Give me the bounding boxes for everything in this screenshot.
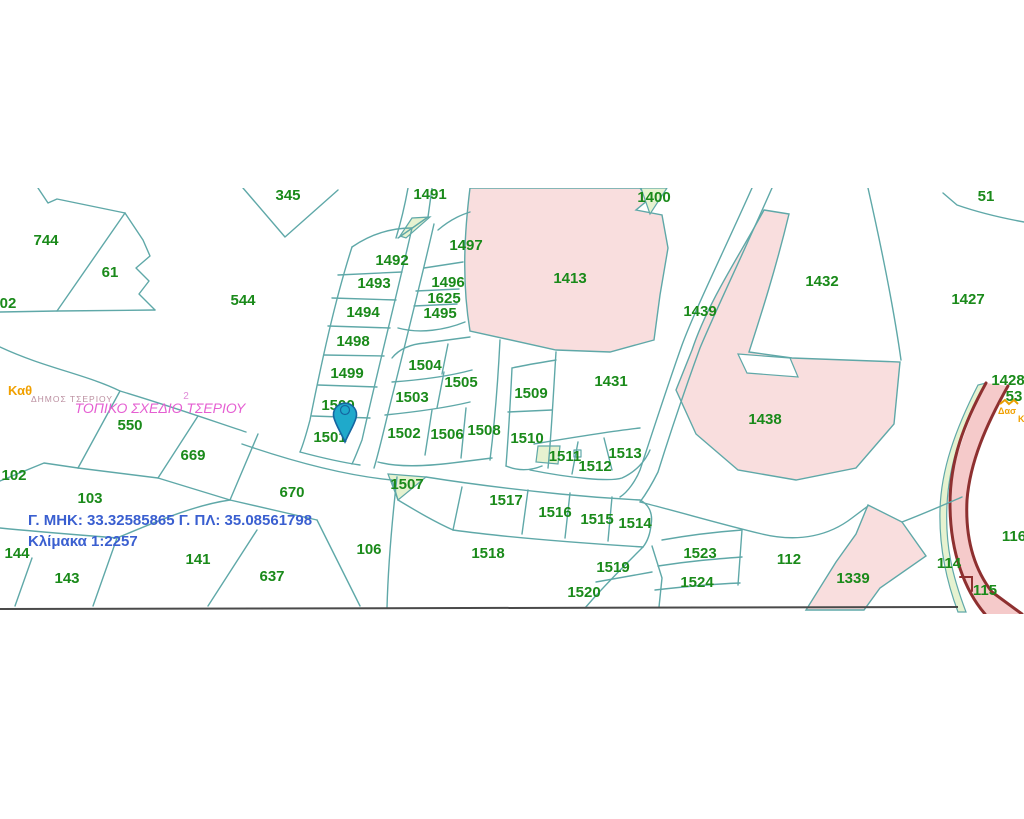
road-right-edge — [950, 383, 1024, 614]
parcel-label-141: 141 — [185, 551, 210, 568]
parcel-label-1519: 1519 — [596, 559, 629, 576]
parcel-label-1428: 1428 — [991, 372, 1024, 389]
parcel-label-1523: 1523 — [683, 545, 716, 562]
parcel-label-1507: 1507 — [390, 476, 423, 493]
parcel-label-1511: 1511 — [549, 448, 582, 465]
parcel-label-550: 550 — [117, 417, 142, 434]
parcel-label-1339: 1339 — [836, 570, 869, 587]
parcel-label-1497: 1497 — [449, 237, 482, 254]
cadastral-map-screenshot: 3451491140051744615440255066910210367014… — [0, 0, 1024, 819]
parcel-label-670: 670 — [279, 484, 304, 501]
parcel-label-1513: 1513 — [608, 445, 641, 462]
parcel-label-744: 744 — [33, 232, 59, 249]
parcel-label-1438: 1438 — [748, 411, 781, 428]
plan-name-label: ΤΟΠΙΚΟ ΣΧΕΔΙΟ ΤΣΕΡΙΟΥ — [75, 400, 247, 416]
parcel-label-1506: 1506 — [430, 426, 463, 443]
parcel-label-1512: 1512 — [578, 458, 611, 475]
parcel-label-51: 51 — [978, 188, 995, 205]
parcel-label-1413: 1413 — [553, 270, 586, 287]
parcel-label-1498: 1498 — [336, 333, 369, 350]
zone-partial-label: Κ — [1018, 414, 1024, 424]
parcel-label-1492: 1492 — [375, 252, 408, 269]
map-canvas[interactable]: 3451491140051744615440255066910210367014… — [0, 188, 1024, 614]
parcel-label-114: 114 — [937, 555, 962, 572]
parcel-label-1503: 1503 — [395, 389, 428, 406]
zone-das-label: Δασ — [998, 406, 1016, 416]
parcel-label-1400: 1400 — [637, 189, 670, 206]
parcel-label-1499: 1499 — [330, 365, 363, 382]
parcel-label-02: 02 — [0, 295, 16, 312]
parcel-label-1432: 1432 — [805, 273, 838, 290]
parcel-label-61: 61 — [102, 264, 119, 281]
parcel-label-1510: 1510 — [510, 430, 543, 447]
parcel-label-1439: 1439 — [683, 303, 716, 320]
parcel-label-637: 637 — [259, 568, 284, 585]
parcel-label-102: 102 — [1, 467, 26, 484]
parcel-label-669: 669 — [180, 447, 205, 464]
parcel-label-1508: 1508 — [467, 422, 500, 439]
parcel-label-1524: 1524 — [680, 574, 714, 591]
parcel-label-1494: 1494 — [346, 304, 380, 321]
parcel-label-1516: 1516 — [538, 504, 571, 521]
parcel-label-1502: 1502 — [387, 425, 420, 442]
parcel-label-1504: 1504 — [408, 357, 442, 374]
parcel-label-1491: 1491 — [413, 188, 446, 203]
map-svg: 3451491140051744615440255066910210367014… — [0, 188, 1024, 614]
scale-readout: Κλίμακα 1:2257 — [28, 533, 138, 550]
parcel-label-1431: 1431 — [594, 373, 627, 390]
parcel-label-116: 116 — [1002, 528, 1024, 545]
parcel-label-103: 103 — [77, 490, 102, 507]
parcel-label-1505: 1505 — [444, 374, 477, 391]
parcel-label-143: 143 — [54, 570, 79, 587]
parcel-label-106: 106 — [356, 541, 381, 558]
parcel-label-345: 345 — [275, 188, 300, 204]
parcel-label-112: 112 — [777, 551, 801, 568]
parcel-label-1520: 1520 — [567, 584, 600, 601]
parcel-label-544: 544 — [230, 292, 256, 309]
parcel-label-1493: 1493 — [357, 275, 390, 292]
parcel-label-1515: 1515 — [580, 511, 613, 528]
parcel-label-1496: 1496 — [431, 274, 464, 291]
parcel-label-1509: 1509 — [514, 385, 547, 402]
coordinates-readout: Γ. ΜΗΚ: 33.32585865 Γ. ΠΛ: 35.08561798 — [28, 512, 312, 529]
parcel-label-115: 115 — [973, 582, 997, 599]
parcel-label-1518: 1518 — [471, 545, 504, 562]
parcel-label-144: 144 — [4, 545, 30, 562]
zone-kath-label: Καθ — [8, 383, 32, 398]
parcel-label-1514: 1514 — [618, 515, 652, 532]
parcel-label-1517: 1517 — [489, 492, 522, 509]
parcel-label-1427: 1427 — [951, 291, 984, 308]
parcel-label-53: 53 — [1006, 388, 1023, 405]
parcel-label-1495: 1495 — [423, 305, 456, 322]
